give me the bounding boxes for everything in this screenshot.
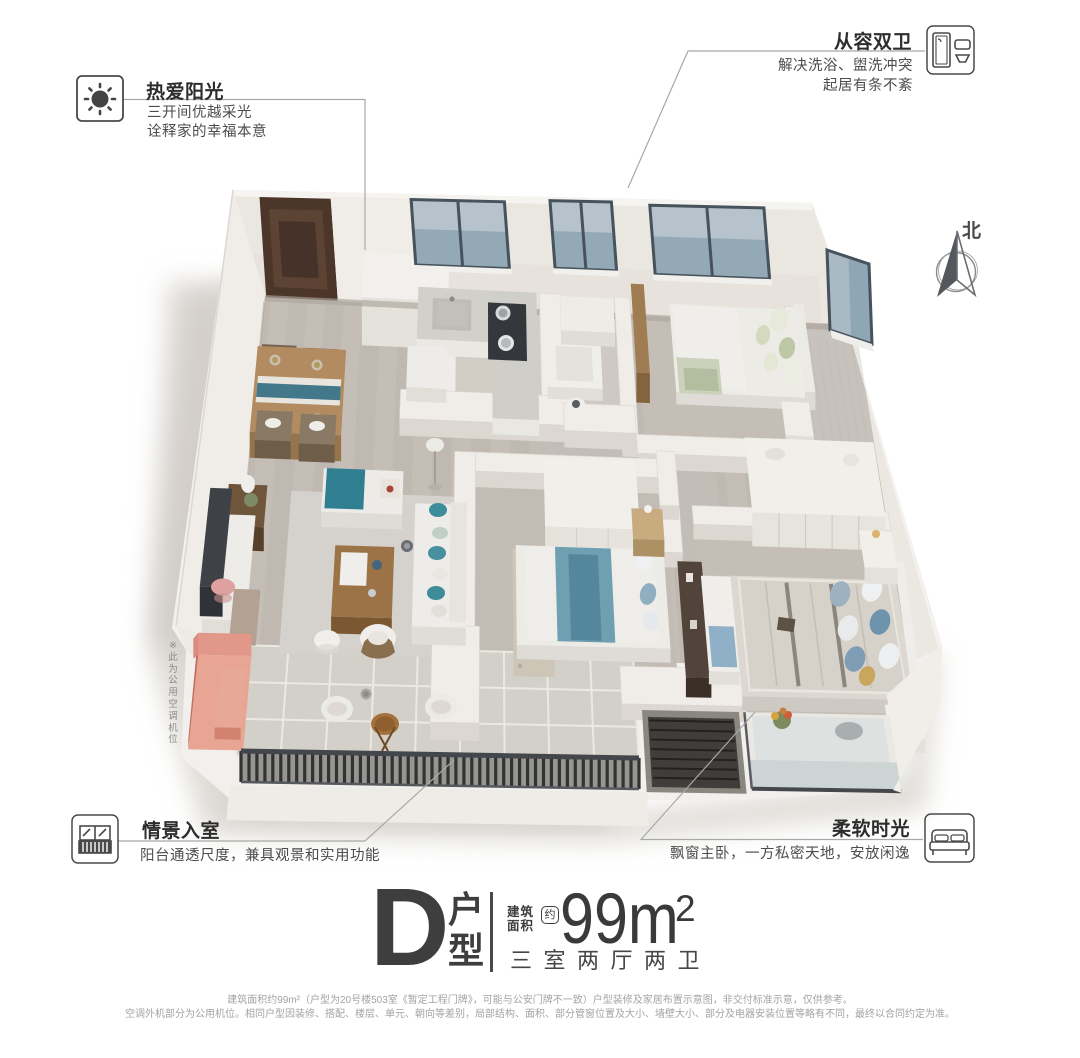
svg-text:北: 北: [962, 220, 981, 242]
